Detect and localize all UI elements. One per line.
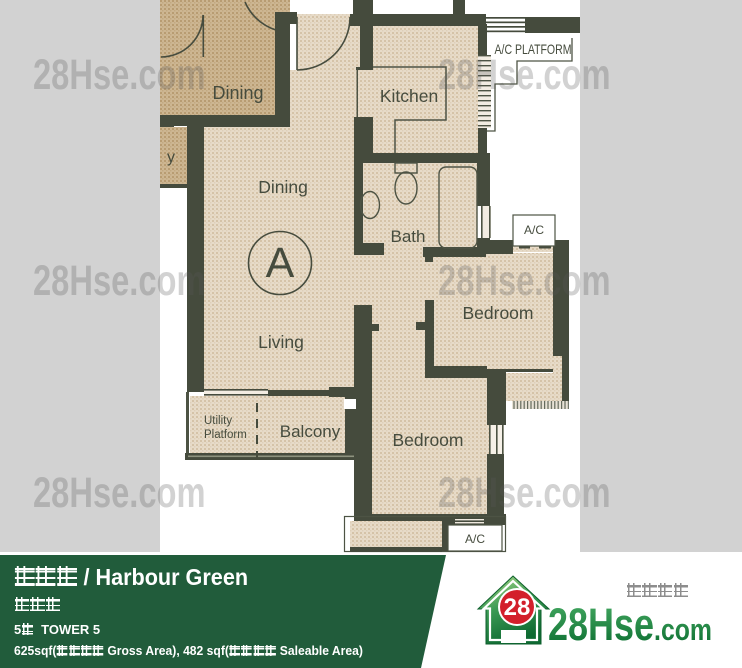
svg-text:28: 28: [504, 594, 531, 621]
svg-text:28Hse.com: 28Hse.com: [548, 599, 712, 650]
